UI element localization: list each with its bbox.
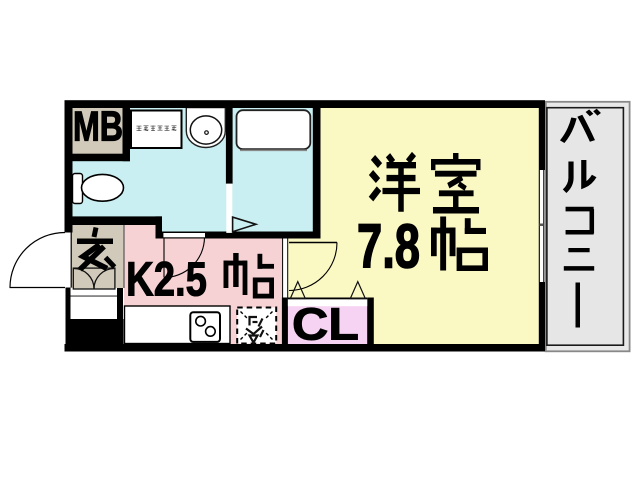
svg-text:CL: CL — [292, 299, 359, 350]
svg-text:K2.5: K2.5 — [126, 253, 207, 307]
svg-text:MB: MB — [73, 103, 123, 150]
svg-text:7.8: 7.8 — [357, 213, 420, 282]
